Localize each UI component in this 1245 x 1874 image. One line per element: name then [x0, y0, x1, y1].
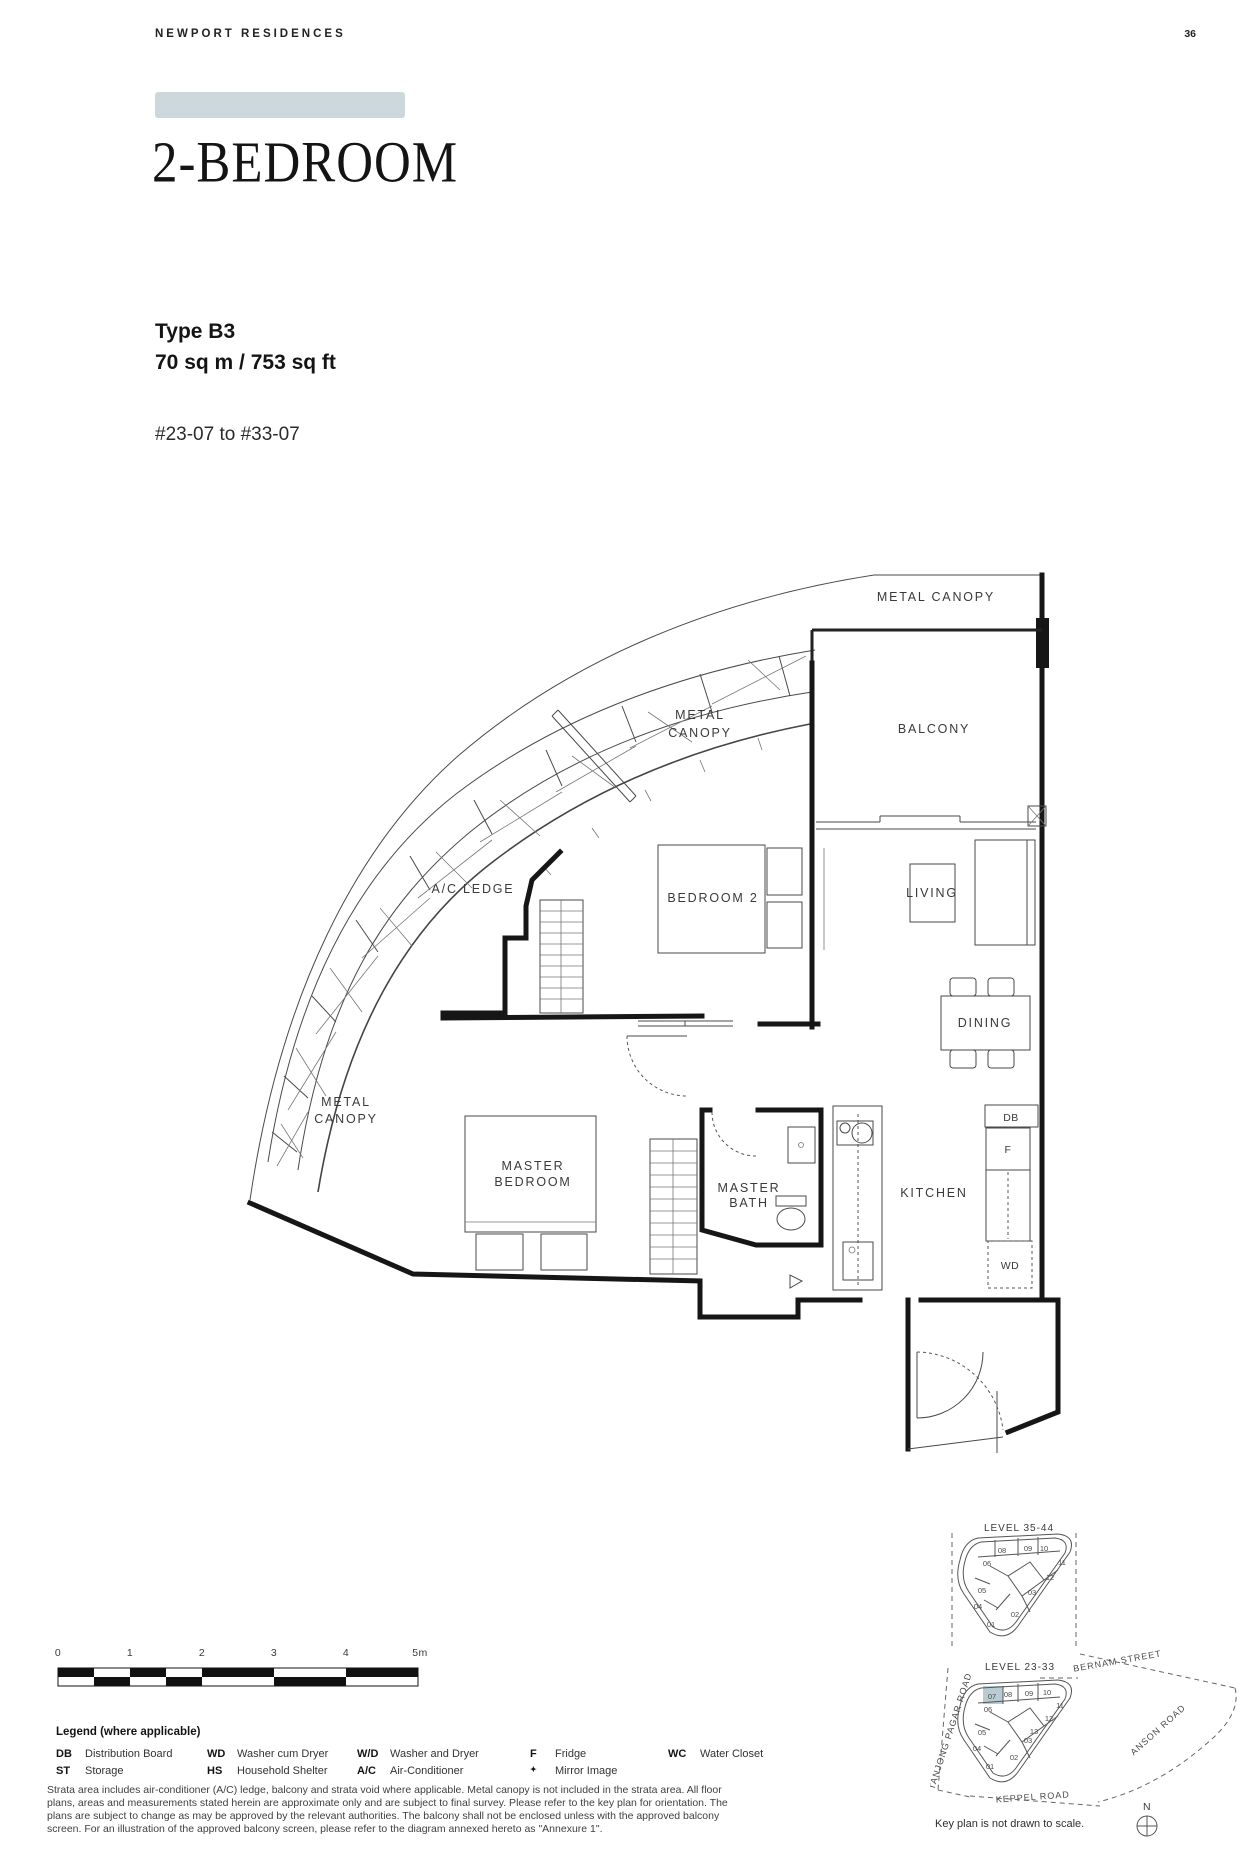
- plan-labels: METAL CANOPY BALCONY METAL CANOPY A/C LE…: [314, 590, 1019, 1272]
- entry-door-leaf: [917, 1352, 983, 1418]
- page-title: 2-BEDROOM: [152, 130, 458, 196]
- unit-label: 08: [998, 1546, 1006, 1555]
- road-keppel: KEPPEL ROAD: [995, 1789, 1070, 1804]
- legend-desc: Washer cum Dryer: [237, 1748, 328, 1760]
- label-bedroom2: BEDROOM 2: [667, 891, 758, 905]
- scale-1: 1: [127, 1647, 133, 1659]
- legend-desc: Distribution Board: [85, 1748, 172, 1760]
- label-master-bedroom-1: MASTER: [502, 1159, 565, 1173]
- scale-numbers: 0 1 2 3 4 5m: [55, 1647, 428, 1659]
- accent-banner: [155, 92, 405, 118]
- unit-area: 70 sq m / 753 sq ft: [155, 347, 336, 378]
- legend-desc: Air-Conditioner: [390, 1765, 463, 1777]
- unit-label: 10: [1040, 1544, 1048, 1553]
- unit-label: 03: [1024, 1736, 1032, 1745]
- floor-plan: METAL CANOPY BALCONY METAL CANOPY A/C LE…: [235, 555, 1065, 1475]
- legend-abbr: WC: [668, 1748, 686, 1760]
- legend-desc: Washer and Dryer: [390, 1748, 479, 1760]
- legend-desc: Household Shelter: [237, 1765, 328, 1777]
- keyplan-note: Key plan is not drawn to scale.: [935, 1818, 1084, 1830]
- bath-sink: [788, 1127, 815, 1163]
- legend-abbr: ✦: [530, 1765, 537, 1774]
- keyplan-upper-level: LEVEL 35-44: [984, 1523, 1054, 1534]
- label-master-bath-2: BATH: [729, 1196, 769, 1210]
- toilet: [776, 1196, 806, 1230]
- scale-3: 3: [271, 1647, 277, 1659]
- legend-abbr: ST: [56, 1765, 70, 1777]
- unit-label: 09: [1025, 1689, 1033, 1698]
- unit-walls: [250, 575, 1058, 1449]
- scale-4: 4: [343, 1647, 349, 1659]
- compass-n: N: [1143, 1801, 1151, 1813]
- label-ac-ledge: A/C LEDGE: [432, 882, 515, 896]
- legend-abbr: WD: [207, 1748, 225, 1760]
- bath-door-swing: [712, 1112, 756, 1156]
- unit-label: 04: [973, 1744, 981, 1753]
- unit-range: #23-07 to #33-07: [155, 424, 300, 446]
- unit-label: 01: [986, 1762, 994, 1771]
- page-number: 36: [1184, 28, 1196, 40]
- unit-label: 02: [1011, 1610, 1019, 1619]
- unit-label: 11: [1056, 1701, 1064, 1710]
- furniture: [465, 806, 1046, 1290]
- label-kitchen: KITCHEN: [900, 1186, 967, 1200]
- legend-abbr: A/C: [357, 1765, 376, 1777]
- unit-label: 02: [1010, 1753, 1018, 1762]
- unit-label: 11: [1058, 1558, 1066, 1567]
- legend-desc: Mirror Image: [555, 1765, 617, 1777]
- disclaimer-line: screen. For an illustration of the appro…: [47, 1823, 762, 1836]
- unit-label: 12: [1045, 1714, 1053, 1723]
- road-anson: ANSON ROAD: [1128, 1702, 1187, 1757]
- legend-title: Legend (where applicable): [56, 1726, 200, 1738]
- label-metal-canopy-bot-1: METAL: [321, 1095, 371, 1109]
- scale-2: 2: [199, 1647, 205, 1659]
- unit-label: 01: [987, 1620, 995, 1629]
- unit-label: 13: [1030, 1727, 1038, 1736]
- label-dining: DINING: [958, 1016, 1013, 1030]
- key-plan: LEVEL 35-44 08 09 10 06 11 05 12 03 04 0…: [930, 1508, 1245, 1848]
- scale-bar: 0 1 2 3 4 5m: [47, 1640, 447, 1692]
- entrance-marker: [790, 1275, 802, 1288]
- corridor-sliding-door: [638, 1021, 733, 1026]
- label-metal-canopy-top: METAL CANOPY: [877, 590, 995, 604]
- unit-label: 04: [974, 1602, 982, 1611]
- living-sofa: [975, 840, 1035, 945]
- scale-5m: 5m: [412, 1647, 428, 1659]
- unit-label: 12: [1046, 1573, 1054, 1582]
- master-wardrobe: [650, 1139, 697, 1274]
- keyplan-lower: LEVEL 23-33 07 08 09 10 06 11 12 13 05 0…: [938, 1654, 1236, 1806]
- unit-label: 08: [1004, 1690, 1012, 1699]
- scale-segments: [58, 1668, 418, 1686]
- unit-type-block: Type B3 70 sq m / 753 sq ft: [155, 316, 336, 378]
- road-bernam: BERNAM STREET: [1073, 1648, 1163, 1673]
- unit-label: 09: [1024, 1544, 1032, 1553]
- master-bed: [465, 1116, 596, 1270]
- brand-header: NEWPORT RESIDENCES: [155, 28, 346, 40]
- label-db: DB: [1003, 1112, 1019, 1124]
- unit-label: 10: [1043, 1688, 1051, 1697]
- legend-desc: Storage: [85, 1765, 124, 1777]
- legend-abbr: W/D: [357, 1748, 378, 1760]
- label-metal-canopy-bot-2: CANOPY: [314, 1112, 378, 1126]
- unit-label: 03: [1028, 1588, 1036, 1597]
- legend-abbr: F: [530, 1748, 537, 1760]
- unit-type: Type B3: [155, 316, 336, 347]
- label-fridge: F: [1005, 1144, 1012, 1156]
- bedroom2-wardrobe: [540, 900, 583, 1013]
- label-living: LIVING: [906, 886, 958, 900]
- label-metal-canopy-mid-2: CANOPY: [668, 726, 732, 740]
- entry-door-swing: [917, 1352, 1003, 1430]
- unit-label: 05: [978, 1586, 986, 1595]
- road-tanjong-pagar: TANJONG PAGAR ROAD: [930, 1671, 974, 1790]
- label-metal-canopy-mid-1: METAL: [675, 708, 725, 722]
- unit-label: 06: [984, 1705, 992, 1714]
- scale-0: 0: [55, 1647, 61, 1659]
- disclaimer-line: plans, areas and measurements stated her…: [47, 1797, 762, 1810]
- disclaimer-line: Strata area includes air-conditioner (A/…: [47, 1784, 762, 1797]
- brochure-page: NEWPORT RESIDENCES 36 2-BEDROOM Type B3 …: [0, 0, 1245, 1874]
- bedroom-door-swing: [627, 1036, 687, 1096]
- unit-label: 06: [983, 1559, 991, 1568]
- balcony-sliding-door: [816, 816, 1036, 829]
- north-compass: N: [1137, 1801, 1157, 1836]
- kitchen-counter: [833, 1106, 882, 1290]
- label-balcony: BALCONY: [898, 722, 970, 736]
- legend-desc: Fridge: [555, 1748, 586, 1760]
- unit-label: 05: [978, 1728, 986, 1737]
- legend-desc: Water Closet: [700, 1748, 763, 1760]
- road-labels: BERNAM STREET TANJONG PAGAR ROAD ANSON R…: [930, 1648, 1188, 1804]
- unit-label-highlighted: 07: [988, 1692, 996, 1701]
- legend-abbr: HS: [207, 1765, 222, 1777]
- label-master-bedroom-2: BEDROOM: [494, 1175, 571, 1189]
- keyplan-lower-level: LEVEL 23-33: [985, 1662, 1055, 1673]
- disclaimer: Strata area includes air-conditioner (A/…: [47, 1784, 762, 1836]
- label-wd: WD: [1001, 1260, 1020, 1272]
- keyplan-upper: LEVEL 35-44 08 09 10 06 11 05 12 03 04 0…: [952, 1523, 1076, 1650]
- disclaimer-line: plans are subject to change as may be ap…: [47, 1810, 762, 1823]
- legend-abbr: DB: [56, 1748, 72, 1760]
- label-master-bath-1: MASTER: [718, 1181, 781, 1195]
